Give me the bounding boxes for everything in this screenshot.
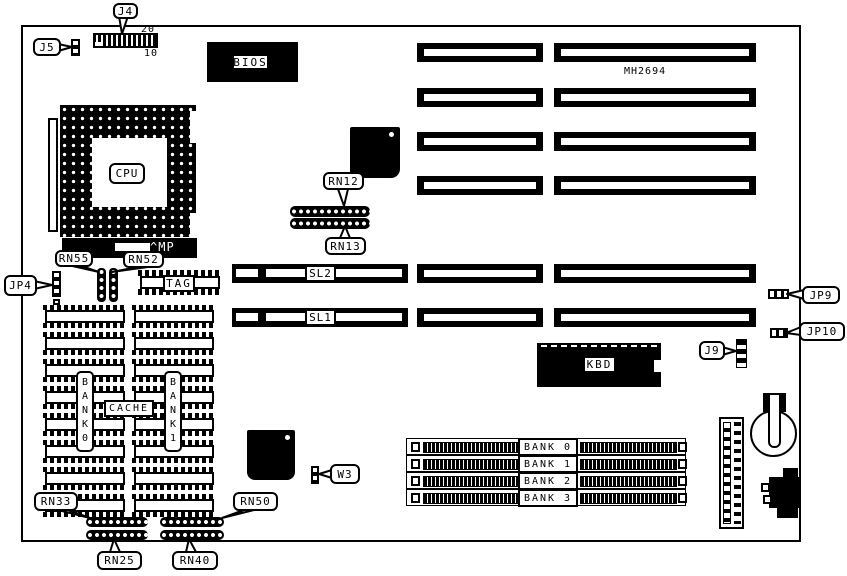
slot-stripe	[424, 138, 536, 145]
w3-jumper	[311, 466, 319, 484]
isa-slot-segment-short	[417, 132, 543, 151]
rn52-callout: RN52	[123, 251, 164, 268]
isa-slot-segment-short	[417, 176, 543, 195]
cache-dip-chip	[43, 332, 127, 355]
slot-stripe	[424, 94, 536, 101]
mp-bar-window	[115, 243, 150, 251]
rn52-resistor-network	[109, 268, 118, 302]
cpu-label: CPU	[109, 163, 145, 184]
cache-dip-chip	[132, 494, 216, 517]
simm-latch-left	[411, 459, 420, 469]
simm-latch-left	[411, 476, 420, 486]
isa-slot-segment-long	[554, 132, 756, 151]
cpu-socket-notch-top	[190, 111, 197, 143]
tag-label: TAG	[163, 275, 195, 292]
rn55-callout: RN55	[55, 250, 93, 267]
dip-body	[45, 337, 125, 350]
plcc-chip-upper	[350, 127, 400, 178]
keyboard-din-pin-upper	[761, 483, 770, 492]
battery-post	[768, 393, 781, 448]
slot-stripe	[561, 314, 749, 321]
motherboard-diagram: 20 10 J4 J5 BIOS CPU ^MP RN55 RN52 TAG J…	[0, 0, 847, 576]
simm-latch-left	[411, 493, 420, 503]
plcc-chip-lower	[247, 430, 295, 480]
slot-label-sl1: SL1	[305, 309, 336, 326]
isa-slot-segment-short	[417, 264, 543, 283]
isa-slot-segment-short	[417, 88, 543, 107]
simm-latch-left	[411, 442, 420, 452]
slot-stripe	[424, 49, 536, 56]
simm-latch-right	[678, 476, 687, 486]
keyboard-din-pin-lower	[763, 495, 772, 504]
j4-connector-pins	[96, 35, 155, 46]
simm-socket: BANK 1	[406, 455, 686, 472]
cpu-socket-lever	[48, 118, 58, 232]
isa-slot-segment-short	[417, 308, 543, 327]
simm-latch-right	[678, 459, 687, 469]
dip-body	[45, 472, 125, 485]
jp10-jumper	[770, 328, 788, 338]
cache-dip-chip	[43, 467, 127, 490]
cache-bank0-label: BANK0	[76, 371, 94, 452]
rn55-resistor-network	[97, 268, 106, 302]
cache-dip-chip	[132, 305, 216, 328]
slot-stripe	[236, 313, 258, 321]
slot-stripe	[424, 314, 536, 321]
dip-pins-bottom	[43, 458, 127, 463]
simm-pin-bar	[580, 442, 677, 453]
rn25-callout: RN25	[97, 551, 142, 570]
isa-slot-segment-long	[554, 264, 756, 283]
simm-pin-bar	[423, 476, 520, 487]
slot-stripe	[561, 49, 749, 56]
simm-bank-label: BANK 2	[518, 472, 578, 490]
simm-socket: BANK 2	[406, 472, 686, 489]
power-connector	[719, 417, 744, 529]
dip-body	[134, 472, 214, 485]
bios-chip-label: BIOS	[232, 54, 269, 70]
simm-pin-bar	[580, 459, 677, 470]
simm-pin-bar	[580, 476, 677, 487]
simm-socket: BANK 0	[406, 438, 686, 455]
rn25-resistor-network	[86, 530, 148, 540]
cache-label: CACHE	[104, 400, 154, 417]
dip-pins-bottom	[132, 323, 216, 328]
j4-pin20-number: 20	[141, 24, 155, 35]
rn13-callout: RN13	[325, 237, 366, 255]
jp9-callout: JP9	[802, 286, 840, 304]
power-connector-contacts-right	[734, 422, 741, 524]
simm-latch-right	[678, 493, 687, 503]
board-marking: MH2694	[624, 66, 666, 77]
keyboard-din-connector-body	[769, 477, 799, 508]
rn12-resistor-network	[290, 206, 370, 217]
rn33-resistor-network	[86, 517, 148, 527]
kbd-chip-notch	[654, 360, 661, 372]
jp10-callout: JP10	[799, 322, 845, 341]
cache-dip-chip	[43, 305, 127, 328]
simm-bank-label: BANK 1	[518, 455, 578, 473]
j4-pin1-marker	[95, 42, 101, 46]
rn40-resistor-network	[160, 530, 224, 540]
slot-stripe	[424, 270, 536, 277]
isa-slot-segment-long	[554, 43, 756, 62]
rn12-callout: RN12	[323, 172, 364, 190]
j4-connector	[93, 33, 158, 48]
simm-pin-bar	[423, 442, 520, 453]
w3-callout: W3	[330, 464, 360, 484]
isa-slot-segment-long	[554, 88, 756, 107]
kbd-chip-dashed-edge	[541, 345, 657, 347]
slot-stripe	[236, 269, 258, 277]
j9-callout: J9	[699, 341, 725, 360]
jp4-callout: JP4	[4, 275, 37, 296]
dip-body	[45, 310, 125, 323]
simm-bank-label: BANK 0	[518, 438, 578, 456]
dip-pins-bottom	[132, 458, 216, 463]
cache-dip-chip	[132, 332, 216, 355]
simm-pin-bar	[423, 493, 520, 504]
rn50-callout: RN50	[233, 492, 278, 511]
dip-body	[134, 499, 214, 512]
slot-label-sl2: SL2	[305, 265, 336, 282]
slot-stripe	[561, 270, 749, 277]
isa-slot-segment-long	[554, 176, 756, 195]
rn13-resistor-network	[290, 218, 370, 229]
slot-stripe	[561, 138, 749, 145]
isa-slot-segment-long	[554, 308, 756, 327]
j4-callout: J4	[113, 3, 138, 19]
j5-jumper	[71, 39, 80, 56]
dip-pins-bottom	[43, 323, 127, 328]
rn50-resistor-network	[160, 517, 224, 527]
j4-pin10-number: 10	[144, 48, 158, 59]
power-connector-contacts-left	[723, 422, 731, 524]
rn40-callout: RN40	[172, 551, 218, 570]
simm-latch-right	[678, 442, 687, 452]
dip-pins-bottom	[132, 350, 216, 355]
keyboard-din-connector-bottom	[777, 508, 798, 518]
jp9-jumper	[768, 289, 789, 299]
dip-pins-bottom	[43, 350, 127, 355]
plcc-chip-upper-pin1-dot	[389, 132, 394, 137]
rn33-callout: RN33	[34, 492, 78, 511]
dip-body	[134, 310, 214, 323]
dip-pins-bottom	[43, 485, 127, 490]
simm-bank-label: BANK 3	[518, 489, 578, 507]
slot-stripe	[561, 94, 749, 101]
simm-socket: BANK 3	[406, 489, 686, 506]
simm-pin-bar	[423, 459, 520, 470]
cache-bank1-label: BANK1	[164, 371, 182, 452]
keyboard-din-connector-top	[783, 468, 798, 477]
plcc-chip-lower-pin1-dot	[285, 435, 290, 440]
jp4-jumper	[52, 271, 61, 297]
kbd-chip-label: KBD	[583, 356, 616, 373]
j9-connector	[736, 339, 747, 368]
j5-callout: J5	[33, 38, 61, 56]
simm-pin-bar	[580, 493, 677, 504]
dip-body	[134, 337, 214, 350]
slot-stripe	[561, 182, 749, 189]
dip-pins-bottom	[132, 485, 216, 490]
slot-stripe	[424, 182, 536, 189]
isa-slot-segment-short	[417, 43, 543, 62]
cache-dip-chip	[132, 467, 216, 490]
